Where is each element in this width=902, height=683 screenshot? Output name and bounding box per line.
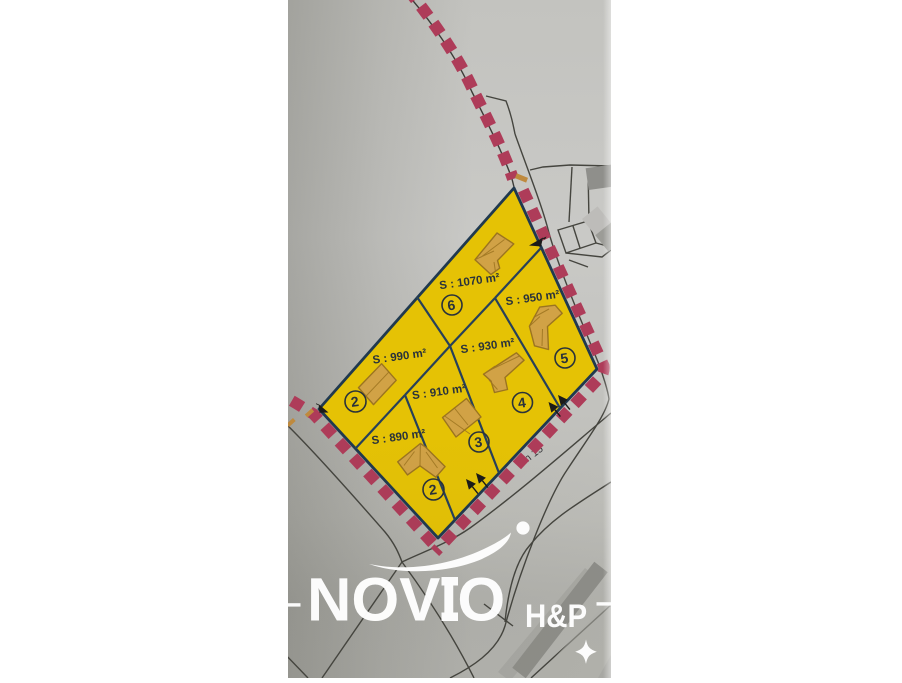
svg-text:H&P: H&P	[525, 598, 587, 634]
svg-text:NOVIO: NOVIO	[307, 566, 505, 635]
